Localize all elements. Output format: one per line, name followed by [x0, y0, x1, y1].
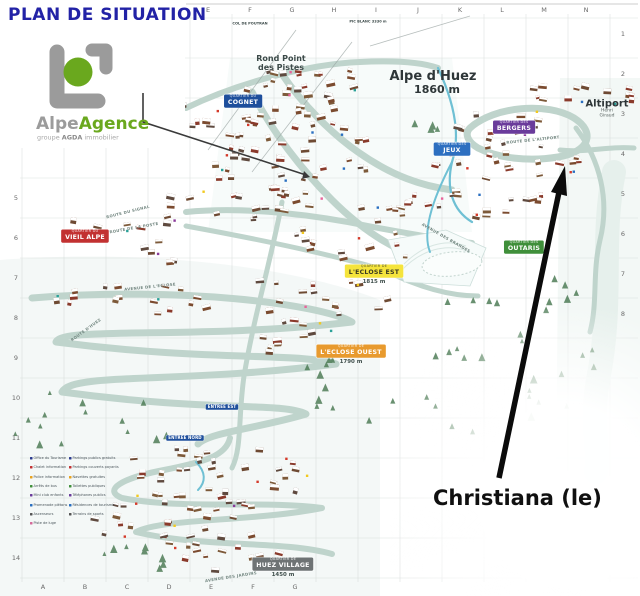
logo-pointer-line [143, 93, 306, 175]
logo-pointer-arrowhead-icon [302, 171, 310, 179]
christiana-arrow-line [499, 192, 559, 478]
page-title: PLAN DE SITUATION [8, 5, 207, 25]
christiana-arrowhead-icon [551, 166, 567, 196]
plan-de-situation: Rond Point des PistesAlpe d'Huez1860 mAl… [0, 0, 640, 596]
alpeagence-logo-wordmark: AlpeAgence [36, 114, 149, 134]
alpeagence-logo-icon [33, 40, 133, 116]
alpeagence-logo-subtitle: groupe AGDA immobilier [37, 134, 119, 141]
brand-agence: Agence [79, 114, 150, 134]
christiana-callout-label: Christiana (le) [433, 486, 602, 510]
brand-alpe: Alpe [36, 114, 79, 134]
